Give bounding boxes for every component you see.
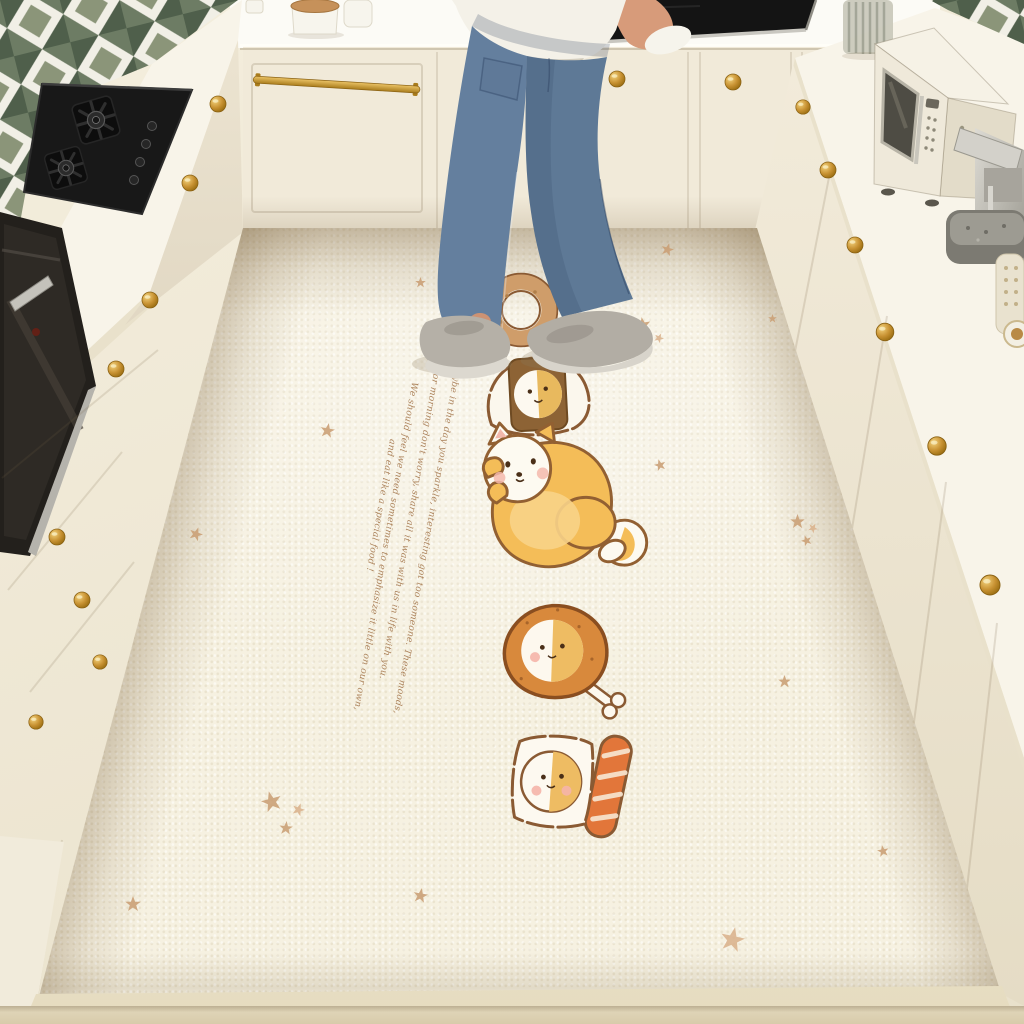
kitchen-scene: Maybe in the day you sparkle, interestin…	[0, 0, 1024, 1024]
floor	[0, 1006, 1024, 1024]
person-jeans	[438, 14, 633, 331]
person-shoe-left	[420, 316, 511, 379]
salmon-sushi-illustration	[493, 718, 649, 850]
person-shoe-right	[527, 311, 653, 374]
shiba-dog-illustration	[445, 418, 655, 583]
person-standing	[398, 0, 698, 398]
chicken-drumstick-illustration	[484, 593, 636, 720]
